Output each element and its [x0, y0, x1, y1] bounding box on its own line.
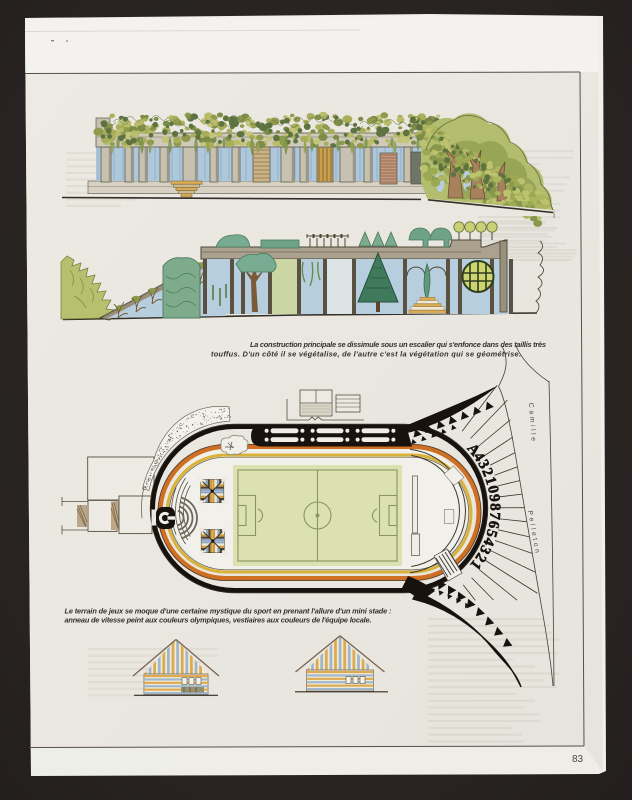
svg-text:touffus. D'un côté il se végét: touffus. D'un côté il se végétalise, de … [211, 350, 521, 359]
svg-text:La construction principale se: La construction principale se dissimule … [250, 340, 546, 349]
svg-text:anneau de vitesse peint aux co: anneau de vitesse peint aux couleurs oly… [65, 616, 372, 625]
svg-text:83: 83 [572, 754, 584, 765]
svg-text:8: 8 [486, 503, 502, 511]
svg-text:Le terrain de jeux se moque d': Le terrain de jeux se moque d'une certai… [65, 607, 393, 616]
